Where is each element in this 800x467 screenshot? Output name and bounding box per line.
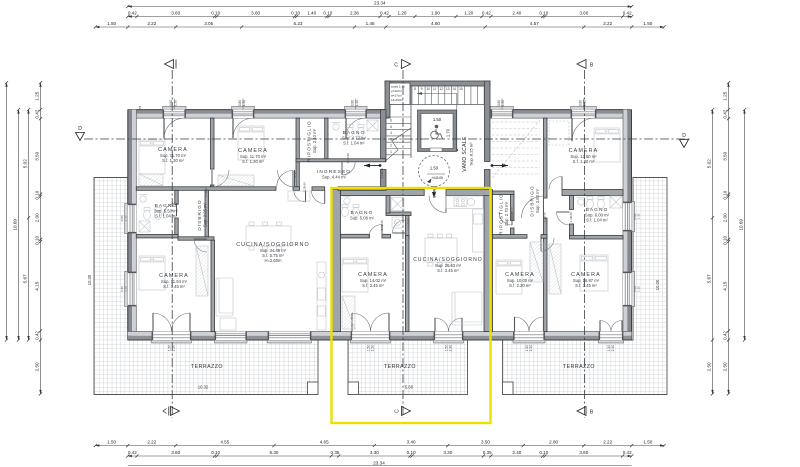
svg-text:S.f. 3.45 m²: S.f. 3.45 m² [575, 283, 597, 288]
svg-text:3.30: 3.30 [370, 450, 379, 455]
svg-text:1.30: 1.30 [173, 100, 177, 106]
svg-text:4: 4 [390, 131, 392, 135]
svg-text:1.50: 1.50 [107, 440, 116, 445]
svg-text:H=2.60m: H=2.60m [264, 258, 282, 263]
svg-text:4.65: 4.65 [320, 440, 329, 445]
svg-text:2.10: 2.10 [510, 211, 514, 217]
svg-text:1.30: 1.30 [636, 213, 640, 219]
svg-text:2.50: 2.50 [34, 362, 39, 371]
svg-text:1.50: 1.50 [643, 440, 652, 445]
svg-text:1.30: 1.30 [124, 215, 128, 221]
svg-text:CAMERA: CAMERA [505, 272, 535, 278]
svg-text:1.30: 1.30 [355, 100, 359, 106]
svg-text:3.60: 3.60 [171, 11, 180, 16]
svg-text:0.42: 0.42 [34, 109, 39, 118]
svg-text:VANO SCALE: VANO SCALE [462, 136, 468, 172]
svg-text:1.25: 1.25 [722, 91, 727, 100]
svg-text:2.50: 2.50 [722, 362, 727, 371]
svg-text:0.35: 0.35 [483, 450, 492, 455]
svg-text:5.67: 5.67 [22, 274, 27, 283]
svg-text:TERRAZZO: TERRAZZO [563, 364, 595, 370]
svg-text:Sup. 3.60 m²: Sup. 3.60 m² [535, 188, 540, 213]
svg-text:S.f. 1.30 m²: S.f. 1.30 m² [162, 158, 184, 163]
svg-text:0.10: 0.10 [539, 450, 548, 455]
svg-text:5.02: 5.02 [22, 159, 27, 168]
svg-text:D: D [139, 106, 142, 110]
svg-text:0.10: 0.10 [722, 235, 727, 244]
svg-text:S.f. 1.30 m²: S.f. 1.30 m² [242, 159, 264, 164]
svg-text:D: D [682, 133, 686, 139]
svg-text:RIPOSTIGLIO: RIPOSTIGLIO [499, 193, 504, 234]
svg-text:0.42: 0.42 [722, 109, 727, 118]
svg-text:2.10: 2.10 [569, 216, 573, 222]
svg-text:1.90: 1.90 [431, 11, 440, 16]
svg-text:0.42: 0.42 [623, 11, 632, 16]
svg-text:Sup. 8.25 m²: Sup. 8.25 m² [469, 142, 474, 166]
svg-text:1.50: 1.50 [107, 21, 116, 26]
svg-text:2.10: 2.10 [380, 172, 384, 178]
svg-text:DISBRIGO: DISBRIGO [530, 185, 535, 216]
svg-text:2.22: 2.22 [603, 440, 612, 445]
svg-text:5: 5 [390, 125, 392, 129]
svg-text:2.40: 2.40 [512, 11, 521, 16]
svg-text:1.30: 1.30 [124, 286, 128, 292]
svg-text:10: 10 [426, 87, 430, 91]
svg-text:S.f. 3.45 m²: S.f. 3.45 m² [437, 268, 459, 273]
svg-text:15: 15 [459, 87, 463, 91]
svg-text:4.60: 4.60 [431, 21, 440, 26]
svg-text:10.69: 10.69 [738, 219, 743, 231]
svg-text:Sup. 4.44 m²: Sup. 4.44 m² [322, 175, 347, 180]
svg-text:RIPOSTIGLIO: RIPOSTIGLIO [307, 120, 312, 161]
svg-text:0.10: 0.10 [722, 190, 727, 199]
svg-text:10.00: 10.00 [655, 279, 660, 290]
svg-text:0.42: 0.42 [623, 450, 632, 455]
svg-text:2.22: 2.22 [147, 21, 156, 26]
svg-text:2.10: 2.10 [433, 191, 437, 197]
svg-text:S.f. 1.30 m²: S.f. 1.30 m² [573, 159, 595, 164]
svg-text:5.67: 5.67 [706, 274, 711, 283]
svg-text:1.20: 1.20 [464, 11, 473, 16]
svg-text:3.60: 3.60 [171, 450, 180, 455]
svg-text:2.10: 2.10 [204, 191, 208, 197]
svg-text:1.30: 1.30 [636, 286, 640, 292]
svg-text:11: 11 [433, 87, 437, 91]
svg-text:D: D [78, 126, 82, 132]
svg-text:16xPx64: 16xPx64 [391, 98, 403, 102]
svg-text:1.25: 1.25 [34, 91, 39, 100]
svg-text:2.22: 2.22 [603, 21, 612, 26]
svg-text:0.42: 0.42 [128, 450, 137, 455]
svg-text:23.34: 23.34 [374, 1, 386, 6]
svg-text:TERRAZZO: TERRAZZO [191, 364, 223, 370]
svg-text:23.34: 23.34 [373, 461, 385, 466]
svg-text:0.10: 0.10 [291, 11, 300, 16]
svg-text:2.10: 2.10 [407, 222, 411, 228]
svg-text:3.05: 3.05 [204, 21, 213, 26]
svg-text:4.15: 4.15 [34, 281, 39, 290]
svg-text:1: 1 [390, 150, 392, 154]
svg-text:13: 13 [446, 87, 450, 91]
svg-text:3.60: 3.60 [579, 450, 588, 455]
svg-text:CAMERA: CAMERA [571, 272, 601, 278]
svg-text:0.42: 0.42 [128, 11, 137, 16]
svg-text:3.60: 3.60 [251, 11, 260, 16]
svg-text:1.20: 1.20 [398, 11, 407, 16]
svg-text:5.60: 5.60 [405, 385, 414, 390]
svg-text:S.f. 3.45 m²: S.f. 3.45 m² [163, 284, 185, 289]
svg-text:4.57: 4.57 [530, 21, 539, 26]
svg-text:3.50: 3.50 [34, 151, 39, 160]
svg-text:2.80: 2.80 [549, 440, 558, 445]
svg-text:2.10: 2.10 [380, 224, 384, 230]
svg-text:2.30: 2.30 [611, 345, 615, 352]
svg-text:2.10: 2.10 [294, 176, 298, 182]
svg-text:0.42: 0.42 [34, 330, 39, 339]
svg-text:2.50: 2.50 [706, 362, 711, 371]
svg-text:S.f. 2.30 m²: S.f. 2.30 m² [509, 283, 531, 288]
svg-text:3.30: 3.30 [443, 450, 452, 455]
svg-text:0.42: 0.42 [722, 330, 727, 339]
svg-text:2.00: 2.00 [34, 213, 39, 222]
svg-text:0.42: 0.42 [482, 11, 491, 16]
svg-text:S.f. 3.45 m²: S.f. 3.45 m² [362, 283, 384, 288]
svg-text:0.80: 0.80 [578, 100, 582, 106]
svg-text:2.10: 2.10 [346, 157, 350, 163]
svg-text:1.30: 1.30 [501, 100, 505, 106]
svg-text:3.50: 3.50 [722, 151, 727, 160]
svg-text:0.80: 0.80 [238, 100, 242, 106]
svg-text:S.f. 1.04 m²: S.f. 1.04 m² [586, 218, 608, 223]
svg-text:0.42: 0.42 [380, 11, 389, 16]
svg-text:0.10: 0.10 [407, 450, 416, 455]
svg-text:a=17cm: a=17cm [391, 94, 402, 98]
svg-text:14: 14 [453, 87, 457, 91]
svg-text:S.f. 1.04 m²: S.f. 1.04 m² [343, 141, 365, 146]
svg-text:6: 6 [390, 119, 392, 123]
svg-text:2.36: 2.36 [350, 11, 359, 16]
svg-text:CAMERA: CAMERA [238, 148, 268, 154]
svg-text:Sup. 2.25 m²: Sup. 2.25 m² [202, 202, 207, 227]
svg-text:C: C [394, 63, 398, 69]
svg-text:0.10: 0.10 [211, 450, 220, 455]
svg-text:Sup. 5.06 m²: Sup. 5.06 m² [350, 216, 375, 221]
svg-text:1.50: 1.50 [433, 117, 442, 122]
svg-text:Sup. 2.40 m²: Sup. 2.40 m² [312, 128, 317, 153]
svg-text:TERRAZZO: TERRAZZO [384, 364, 416, 370]
svg-text:3.50: 3.50 [481, 440, 490, 445]
svg-text:2.10: 2.10 [303, 186, 307, 192]
svg-text:0.10: 0.10 [34, 190, 39, 199]
svg-text:4.55: 4.55 [220, 440, 229, 445]
svg-text:1.50: 1.50 [643, 21, 652, 26]
svg-text:2.30: 2.30 [371, 345, 375, 352]
svg-text:0.10: 0.10 [323, 11, 332, 16]
svg-text:3.40: 3.40 [407, 440, 416, 445]
svg-text:0.80: 0.80 [497, 100, 501, 106]
svg-text:CUCINA/SOGGIORNO: CUCINA/SOGGIORNO [236, 242, 310, 248]
svg-text:5.23: 5.23 [294, 21, 303, 26]
svg-text:1.40: 1.40 [307, 11, 316, 16]
svg-text:9: 9 [421, 87, 423, 91]
svg-text:5.02: 5.02 [706, 159, 711, 168]
svg-text:1.70: 1.70 [446, 128, 451, 137]
svg-text:CAMERA: CAMERA [159, 273, 189, 279]
svg-text:CAMERA: CAMERA [158, 147, 188, 153]
svg-text:CAMERA: CAMERA [358, 272, 388, 278]
svg-text:0.80: 0.80 [294, 171, 298, 177]
svg-text:0.10: 0.10 [34, 235, 39, 244]
svg-text:CAMERA: CAMERA [569, 148, 599, 154]
svg-text:0.10: 0.10 [539, 11, 548, 16]
svg-text:2: 2 [390, 144, 392, 148]
svg-text:10.69: 10.69 [12, 219, 17, 231]
svg-text:0.10: 0.10 [211, 11, 220, 16]
svg-text:p=30cm: p=30cm [391, 89, 402, 93]
svg-text:2.30: 2.30 [449, 345, 453, 352]
svg-text:C: C [395, 409, 401, 413]
svg-text:5.30: 5.30 [270, 450, 279, 455]
svg-text:10.00: 10.00 [87, 274, 92, 285]
svg-text:3.60: 3.60 [579, 11, 588, 16]
svg-text:0.35: 0.35 [331, 450, 340, 455]
svg-text:1.45: 1.45 [366, 21, 375, 26]
svg-text:10.32: 10.32 [198, 385, 209, 390]
svg-text:2.22: 2.22 [147, 440, 156, 445]
svg-text:2.10: 2.10 [543, 216, 547, 222]
svg-text:12: 12 [439, 87, 443, 91]
svg-text:1.50: 1.50 [430, 166, 439, 171]
svg-text:4.15: 4.15 [722, 281, 727, 290]
svg-text:1.30: 1.30 [242, 100, 246, 106]
svg-text:2.30: 2.30 [529, 345, 533, 352]
svg-text:8: 8 [414, 87, 416, 91]
svg-text:DISBRIGO: DISBRIGO [197, 199, 202, 230]
svg-text:2.40: 2.40 [512, 450, 521, 455]
svg-text:Sup. 2.70 m²: Sup. 2.70 m² [504, 201, 509, 226]
svg-text:+443.65: +443.65 [431, 176, 443, 180]
svg-text:S.f. 1.04 m²: S.f. 1.04 m² [155, 214, 177, 219]
svg-text:2.00: 2.00 [722, 213, 727, 222]
